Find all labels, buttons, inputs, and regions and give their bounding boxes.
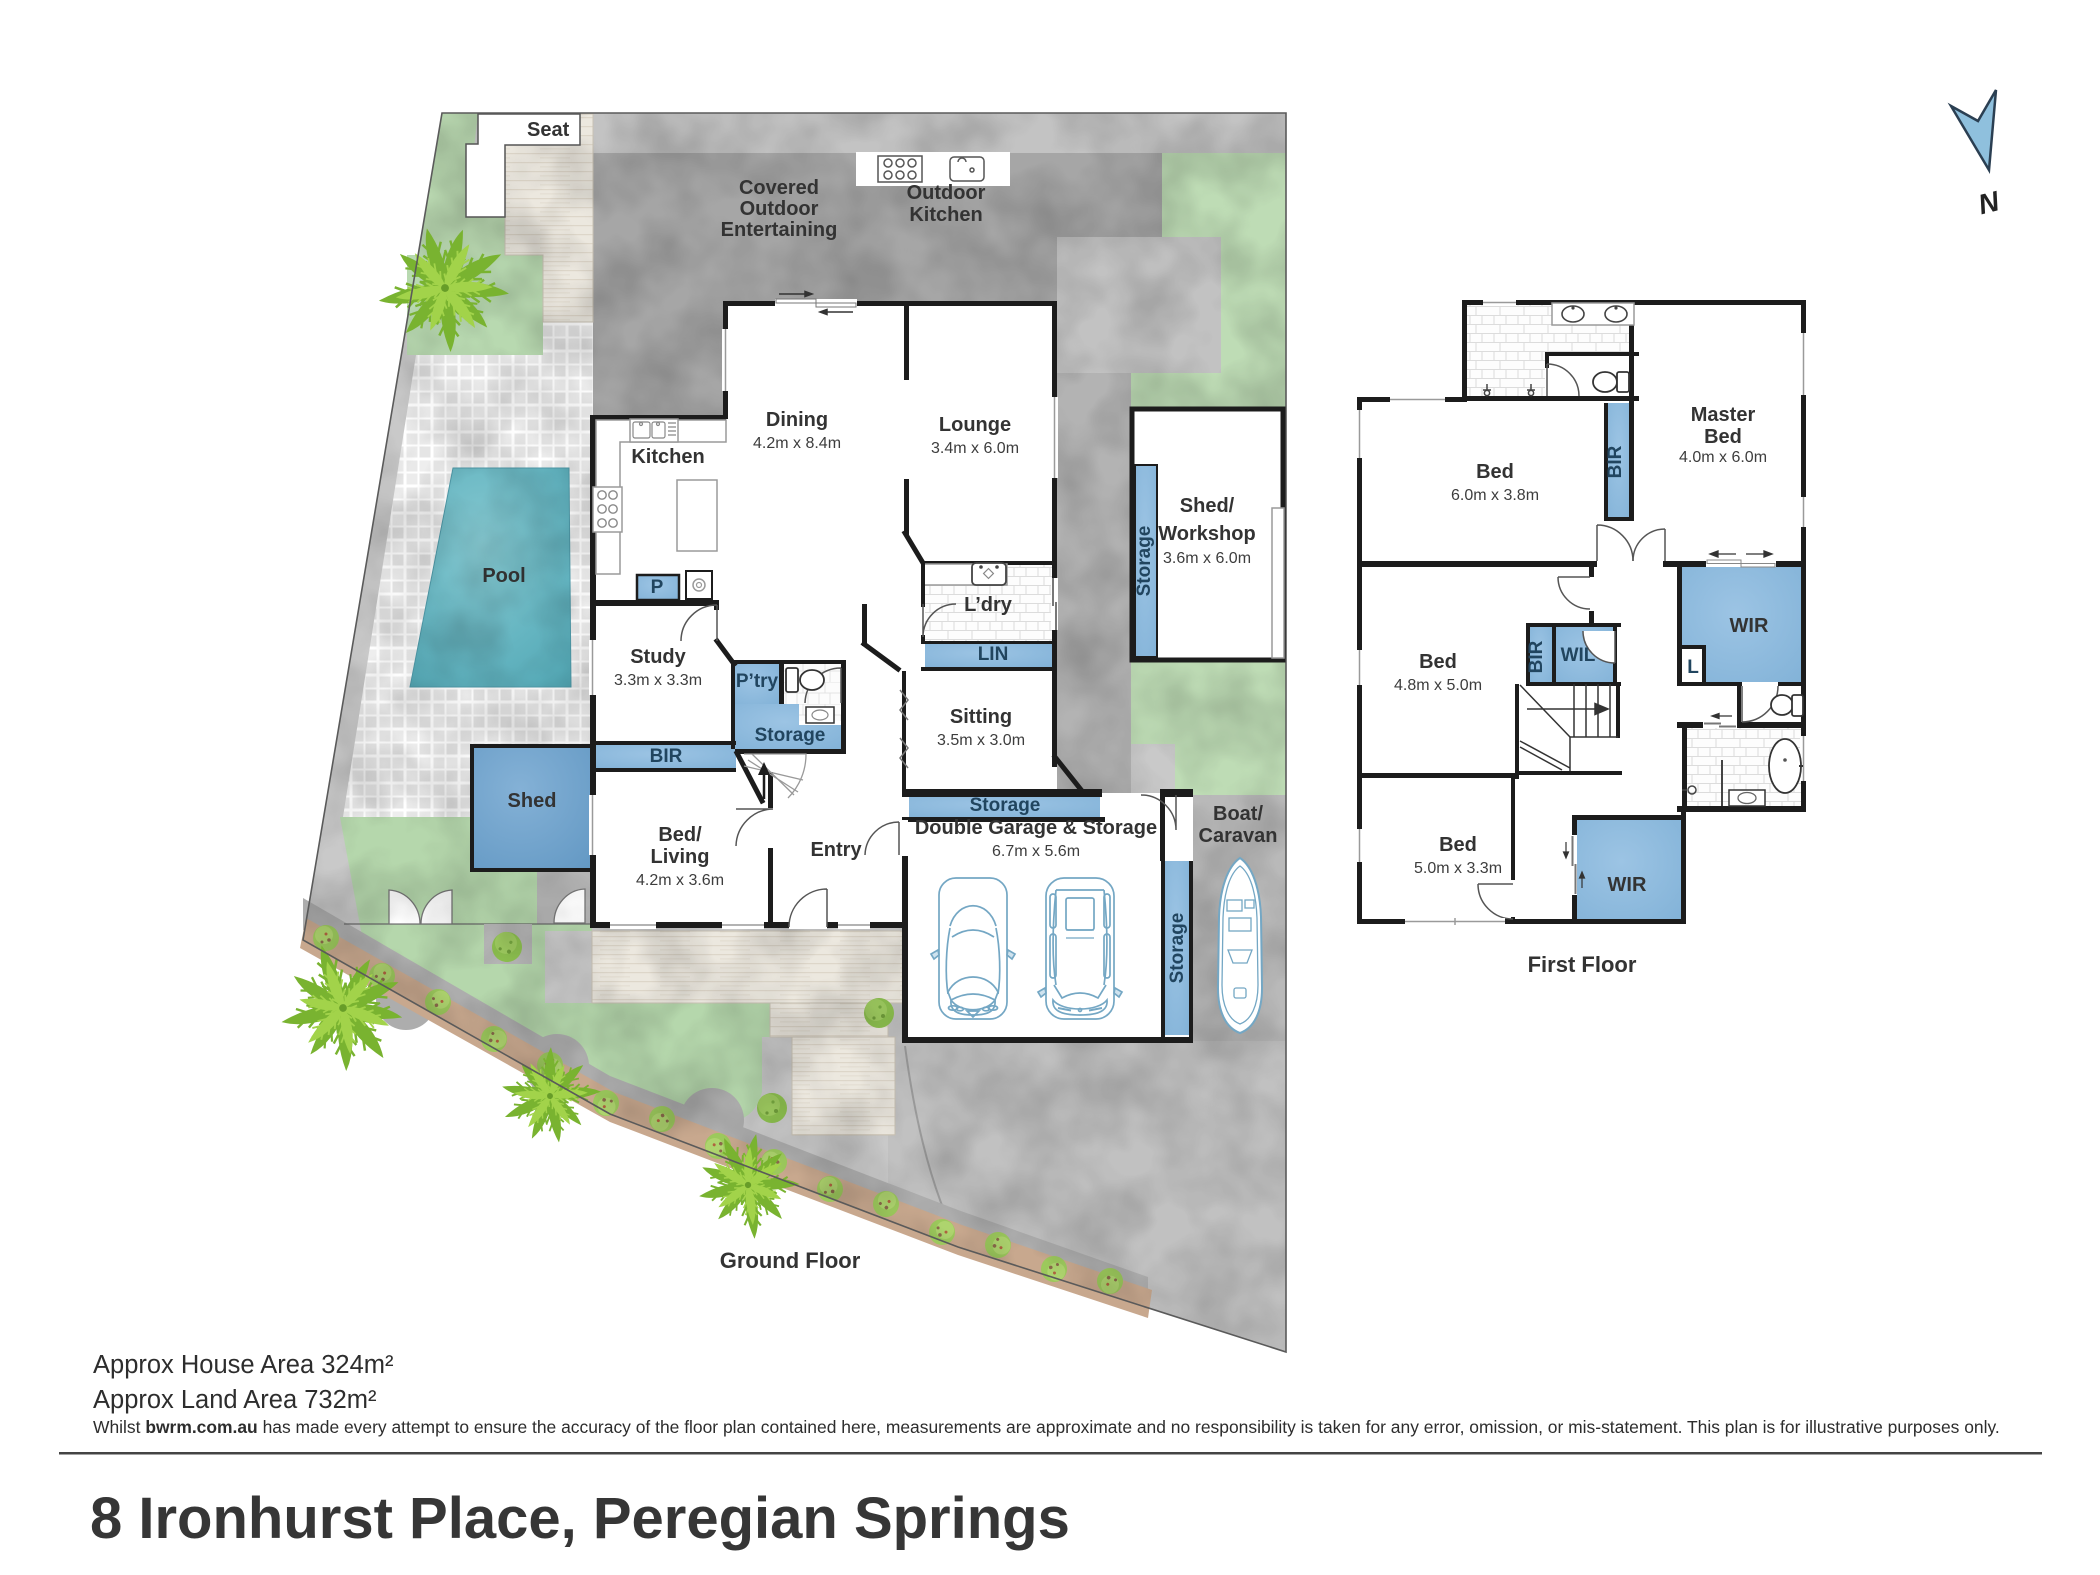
svg-text:Outdoor: Outdoor xyxy=(907,182,986,204)
svg-text:Approx House Area 324m²: Approx House Area 324m² xyxy=(93,1351,394,1379)
svg-text:Seat: Seat xyxy=(527,119,570,141)
svg-text:L: L xyxy=(1687,657,1699,678)
svg-text:Bed: Bed xyxy=(1476,461,1514,483)
svg-text:5.0m x 3.3m: 5.0m x 3.3m xyxy=(1414,860,1502,877)
svg-text:Bed: Bed xyxy=(1704,426,1742,448)
svg-text:Dining: Dining xyxy=(766,409,828,431)
svg-text:Boat/: Boat/ xyxy=(1213,803,1263,825)
svg-text:Entertaining: Entertaining xyxy=(721,219,838,241)
svg-text:4.2m x 8.4m: 4.2m x 8.4m xyxy=(753,435,841,452)
svg-text:Kitchen: Kitchen xyxy=(631,446,704,468)
svg-text:First Floor: First Floor xyxy=(1528,952,1637,977)
svg-text:BIR: BIR xyxy=(650,746,683,767)
svg-text:3.5m x 3.0m: 3.5m x 3.0m xyxy=(937,732,1025,749)
svg-text:Caravan: Caravan xyxy=(1199,825,1278,847)
svg-text:Covered: Covered xyxy=(739,177,819,199)
svg-text:Sitting: Sitting xyxy=(950,706,1012,728)
svg-text:Workshop: Workshop xyxy=(1158,523,1255,545)
svg-text:4.8m x 5.0m: 4.8m x 5.0m xyxy=(1394,677,1482,694)
svg-text:6.7m x 5.6m: 6.7m x 5.6m xyxy=(992,843,1080,860)
svg-text:6.0m x 3.8m: 6.0m x 3.8m xyxy=(1451,487,1539,504)
svg-text:Ground Floor: Ground Floor xyxy=(720,1248,861,1273)
svg-text:P’try: P’try xyxy=(736,671,779,692)
svg-text:Storage: Storage xyxy=(1134,526,1155,597)
svg-text:4.2m x 3.6m: 4.2m x 3.6m xyxy=(636,872,724,889)
svg-text:WIR: WIR xyxy=(1608,874,1647,896)
svg-text:BIR: BIR xyxy=(1526,640,1547,673)
svg-text:Storage: Storage xyxy=(755,725,826,746)
svg-text:8 Ironhurst Place, Peregian Sp: 8 Ironhurst Place, Peregian Springs xyxy=(90,1486,1070,1551)
svg-text:3.3m x 3.3m: 3.3m x 3.3m xyxy=(614,672,702,689)
svg-text:P: P xyxy=(651,577,664,598)
svg-text:Bed: Bed xyxy=(1439,834,1477,856)
svg-text:Entry: Entry xyxy=(810,839,862,861)
svg-text:3.6m x 6.0m: 3.6m x 6.0m xyxy=(1163,550,1251,567)
svg-text:Outdoor: Outdoor xyxy=(740,198,819,220)
svg-text:Kitchen: Kitchen xyxy=(909,204,982,226)
svg-text:Approx Land Area 732m²: Approx Land Area 732m² xyxy=(93,1386,377,1414)
svg-text:BIR: BIR xyxy=(1605,445,1626,478)
svg-text:Storage: Storage xyxy=(970,795,1041,816)
svg-text:Shed: Shed xyxy=(508,790,557,812)
svg-text:Lounge: Lounge xyxy=(939,414,1011,436)
svg-text:Living: Living xyxy=(651,846,710,868)
svg-text:WIL: WIL xyxy=(1561,645,1596,666)
svg-text:L’dry: L’dry xyxy=(964,594,1013,616)
svg-text:Whilst bwrm.com.au has made ev: Whilst bwrm.com.au has made every attemp… xyxy=(93,1417,2000,1437)
svg-text:Study: Study xyxy=(630,646,686,668)
svg-text:LIN: LIN xyxy=(978,644,1009,665)
svg-text:4.0m x 6.0m: 4.0m x 6.0m xyxy=(1679,449,1767,466)
svg-text:Master: Master xyxy=(1691,404,1756,426)
svg-text:Bed/: Bed/ xyxy=(658,824,702,846)
svg-text:N: N xyxy=(1975,185,2003,220)
svg-text:WIR: WIR xyxy=(1730,615,1769,637)
svg-text:Shed/: Shed/ xyxy=(1180,495,1235,517)
svg-text:Bed: Bed xyxy=(1419,651,1457,673)
svg-text:Storage: Storage xyxy=(1167,913,1188,984)
svg-text:Double Garage & Storage: Double Garage & Storage xyxy=(915,817,1157,839)
svg-text:3.4m x 6.0m: 3.4m x 6.0m xyxy=(931,440,1019,457)
